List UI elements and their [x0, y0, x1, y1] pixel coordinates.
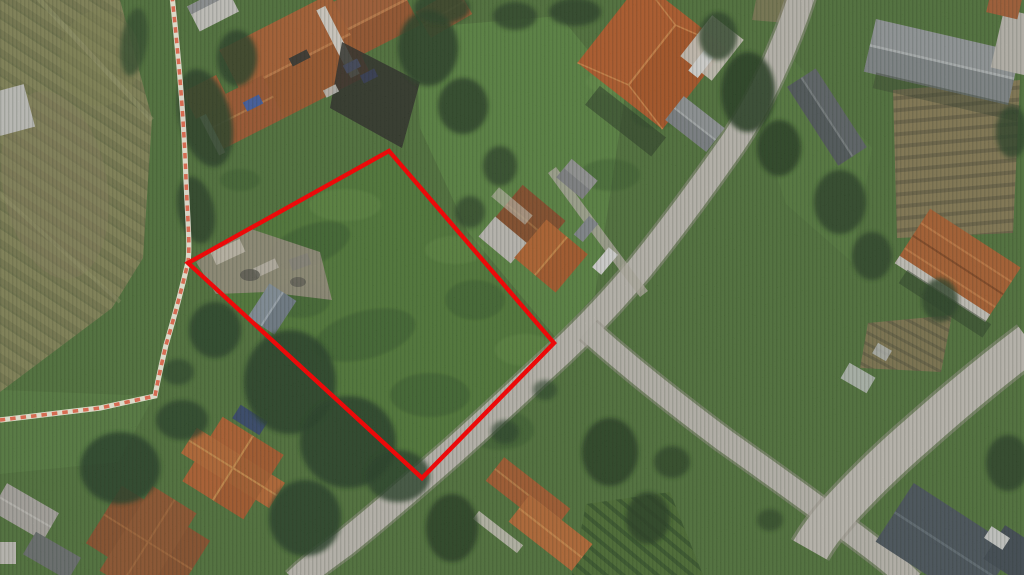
aerial-photo-container [0, 0, 1024, 575]
photo-effects [0, 0, 1024, 575]
grain-light [0, 0, 1024, 575]
aerial-photo [0, 0, 1024, 575]
